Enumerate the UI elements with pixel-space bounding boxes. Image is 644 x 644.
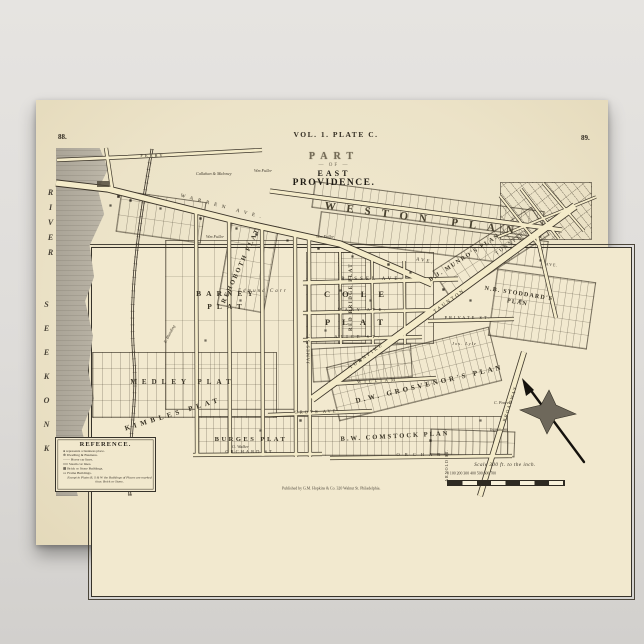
owner-label-pearce: C. Pearce bbox=[494, 401, 511, 406]
publisher-imprint: Published by G.M. Hopkins & Co. 320 Waln… bbox=[235, 486, 428, 490]
reference-title: REFERENCE. bbox=[56, 441, 155, 448]
owner-label-carr: Edmund Carr bbox=[238, 289, 288, 295]
street-label-orchard: ORCHARD bbox=[360, 452, 490, 457]
map-title-of: — OF — bbox=[288, 163, 380, 169]
map-title-east: EAST bbox=[288, 169, 380, 178]
reference-legend: REFERENCE. ● represents a business place… bbox=[55, 437, 156, 492]
compass-star bbox=[520, 390, 576, 434]
owner-label-lyle: Jos. Lyle bbox=[452, 341, 477, 346]
owner-label-fuller-top: Wm Fuller bbox=[254, 169, 272, 174]
street-label-james-st: JAMES ST. bbox=[305, 319, 310, 379]
building-marks bbox=[0, 0, 1, 1]
scale-label: Scale 300 ft. to the inch. bbox=[440, 463, 570, 469]
compass-rose bbox=[520, 378, 584, 462]
reference-line: ══ Steam car lines. bbox=[63, 462, 157, 466]
scale-tick-numbers: 0 100 200 300 400 500 600 700 bbox=[447, 471, 574, 475]
product-photo-backdrop: 88. VOL. 1. PLATE C. 89. RIVER SEEKONK bbox=[0, 0, 644, 644]
reference-lines: ● represents a business place. ⊕ Dwellin… bbox=[63, 449, 157, 484]
street-label-mary-ave: MARY AVE. bbox=[308, 307, 418, 312]
owner-label-ingraham: Ingrahams bbox=[490, 428, 508, 433]
reference-line: ⊕ Dwelling & Business. bbox=[63, 453, 157, 457]
ferry-landing-buildings bbox=[97, 181, 109, 187]
street-label-private-st: PRIVATE ST. bbox=[428, 315, 508, 320]
owner-label-fuller-east: Wm Fuller bbox=[316, 235, 334, 240]
owner-label-fuller-mid: Wm Fuller bbox=[206, 235, 224, 240]
reference-footnote: Except in Plates R, S & W the Buildings … bbox=[64, 475, 155, 483]
reference-line: —— Horse car lines. bbox=[63, 457, 157, 461]
street-label-ferry: FERRY bbox=[130, 153, 175, 158]
scale-bar bbox=[447, 480, 565, 486]
reference-line: ▦ Brick or Stone Buildings. bbox=[63, 466, 157, 470]
map-title-providence: PROVIDENCE. bbox=[283, 178, 385, 189]
plat-label-cole-2: PLAT bbox=[315, 318, 405, 328]
street-label-orchard-st: ORCHARD ST. bbox=[196, 449, 306, 454]
plat-label-cole: COLE bbox=[315, 290, 405, 300]
owner-label-callahan: Callahan & Maloney bbox=[196, 172, 232, 177]
reference-line: ● represents a business place. bbox=[63, 449, 157, 453]
owner-label-walker: G. Walker bbox=[232, 445, 249, 450]
plat-label-medley: MEDLEY PLAT bbox=[98, 378, 268, 386]
street-label-russel-ave: RUSSEL AVE. bbox=[308, 277, 438, 283]
plat-label-burges: BURGES PLAT bbox=[196, 436, 306, 443]
reference-line: ▭ Frame Buildings. bbox=[63, 471, 157, 475]
map-title-part: PART bbox=[288, 151, 380, 163]
